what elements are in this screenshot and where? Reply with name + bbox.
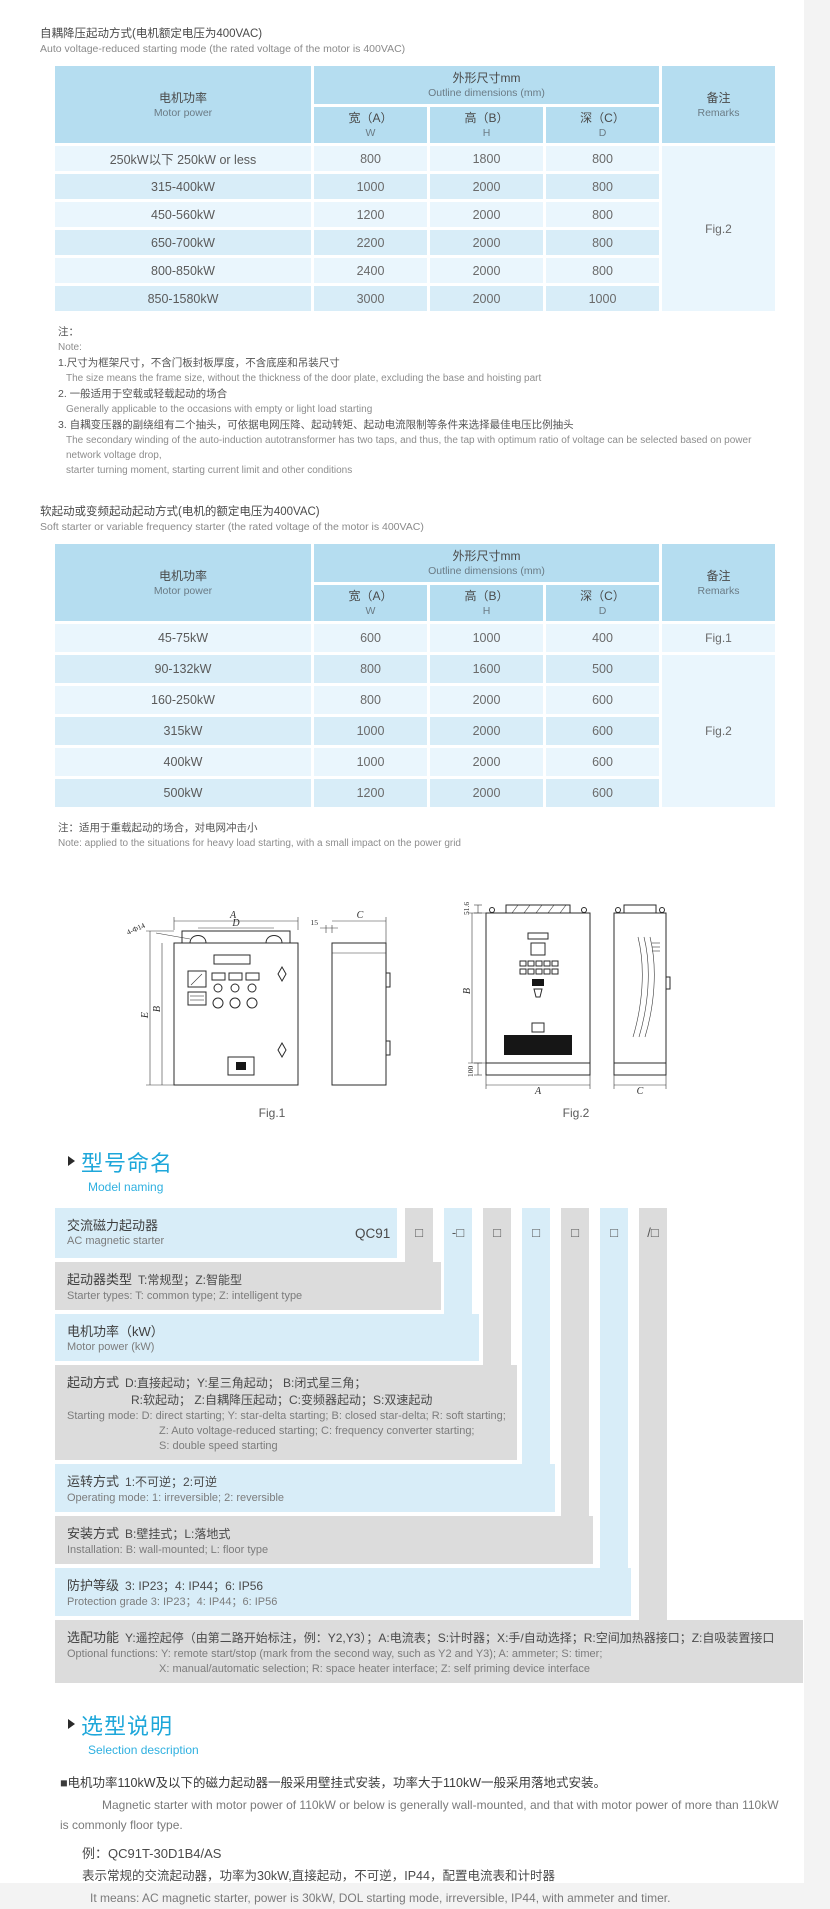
section1-notes: 注： Note: 1.尺寸为框架尺寸，不含门板封板厚度，不含底座和吊装尺寸 Th…	[58, 324, 790, 478]
catalog-page: 自耦降压起动方式(电机额定电压为400VAC) Auto voltage-red…	[0, 0, 830, 1909]
note-item: The secondary winding of the auto-induct…	[58, 433, 778, 463]
fig1-drawing: A D 4-Φ14 E	[122, 897, 422, 1097]
svg-text:B: B	[152, 1006, 163, 1012]
cell-remark-fig1: Fig.1	[662, 624, 775, 652]
header-outline-en: Outline dimensions (mm)	[314, 86, 659, 100]
header-outline-dimensions: 外形尺寸mm Outline dimensions (mm)	[314, 544, 659, 582]
fig1-caption: Fig.1	[122, 1106, 422, 1120]
svg-text:C: C	[357, 910, 364, 921]
naming-row-product: 交流磁力起动器 AC magnetic starter	[55, 1208, 397, 1258]
header-remarks: 备注 Remarks	[662, 66, 775, 143]
section2-title-en: Soft starter or variable frequency start…	[40, 520, 790, 535]
code-position-strip: □	[522, 1208, 550, 1466]
section2-title: 软起动或变频起动起动方式(电机的额定电压为400VAC) Soft starte…	[40, 504, 790, 535]
header-height: 高（B） H	[430, 107, 543, 143]
table-row: 45-75kW 600 1000 400 Fig.1	[55, 624, 775, 652]
header-remarks-cn: 备注	[662, 90, 775, 106]
code-position-strip: /□	[639, 1208, 667, 1622]
note-item: 1.尺寸为框架尺寸，不含门板封板厚度，不含底座和吊装尺寸	[58, 355, 790, 371]
code-position-strip: □	[600, 1208, 628, 1570]
code-position-strip: -□	[444, 1208, 472, 1316]
cell-h: 1800	[430, 146, 543, 171]
table-row: 250kW以下 250kW or less 800 1800 800 Fig.2	[55, 146, 775, 171]
header-motor-power-cn: 电机功率	[55, 90, 311, 106]
header-motor-power-en: Motor power	[55, 106, 311, 120]
naming-row-starter-type: 起动器类型T:常规型；Z:智能型 Starter types: T: commo…	[55, 1262, 441, 1310]
page-edge-right	[804, 0, 830, 1909]
code-position-strip: □	[561, 1208, 589, 1518]
header-outline-cn: 外形尺寸mm	[314, 70, 659, 86]
naming-row-operating-mode: 运转方式1:不可逆；2:可逆 Operating mode: 1: irreve…	[55, 1464, 555, 1512]
selection-heading-en: Selection description	[88, 1743, 790, 1757]
svg-text:B: B	[462, 988, 473, 994]
code-position-strip: □	[483, 1208, 511, 1367]
header-remarks-en: Remarks	[662, 106, 775, 120]
header-motor-power: 电机功率 Motor power	[55, 544, 311, 621]
svg-text:A: A	[534, 1086, 542, 1097]
section2-title-cn: 软起动或变频起动起动方式(电机的额定电压为400VAC)	[40, 504, 790, 520]
figure-1: A D 4-Φ14 E	[122, 897, 422, 1120]
note-item: Generally applicable to the occasions wi…	[58, 402, 778, 417]
naming-row-installation: 安装方式B:壁挂式；L:落地式 Installation: B: wall-mo…	[55, 1516, 593, 1564]
section-arrow-icon	[68, 1156, 75, 1166]
selection-example-model: 例：QC91T-30D1B4/AS	[60, 1843, 790, 1865]
section-arrow-icon	[68, 1719, 75, 1729]
naming-row-starting-mode: 起动方式D:直接起动；Y:星三角起动； B:闭式星三角； R:软起动； Z:自耦…	[55, 1365, 517, 1460]
svg-text:100: 100	[466, 1066, 475, 1078]
section2-note: 注：适用于重载起动的场合，对电网冲击小 Note: applied to the…	[58, 820, 790, 851]
cell-w: 800	[314, 146, 427, 171]
cell-d: 800	[546, 146, 659, 171]
fig2-caption: Fig.2	[456, 1106, 696, 1120]
model-naming-heading-cn: 型号命名	[81, 1146, 173, 1178]
outline-figures: A D 4-Φ14 E	[122, 885, 790, 1120]
svg-text:4-Φ14: 4-Φ14	[125, 921, 146, 937]
figure-2: 51.6 B	[456, 885, 696, 1120]
model-code-prefix: QC91	[355, 1208, 390, 1258]
header-remarks: 备注 Remarks	[662, 544, 775, 621]
table-row: 90-132kW 800 1600 500 Fig.2	[55, 655, 775, 683]
fig2-drawing: 51.6 B	[456, 885, 696, 1097]
selection-example-cn: 表示常规的交流起动器，功率为30kW,直接起动，不可逆，IP44，配置电流表和计…	[60, 1865, 790, 1887]
svg-text:15: 15	[311, 918, 319, 927]
naming-row-optional-functions: 选配功能Y:遥控起停（由第二路开始标注，例：Y2,Y3）；A:电流表；S:计时器…	[55, 1620, 803, 1683]
model-naming-diagram: 交流磁力起动器 AC magnetic starter 起动器类型T:常规型；Z…	[55, 1208, 803, 1683]
table-header-row: 电机功率 Motor power 外形尺寸mm Outline dimensio…	[55, 66, 775, 104]
note-label-en: Note:	[58, 340, 778, 355]
note-item: 3. 自耦变压器的副绕组有二个抽头，可依据电网压降、起动转矩、起动电流限制等条件…	[58, 417, 790, 433]
header-width: 宽（A） W	[314, 107, 427, 143]
selection-heading: 选型说明 Selection description	[68, 1709, 790, 1757]
note-label-cn: 注：	[58, 324, 790, 340]
header-depth: 深（C） D	[546, 585, 659, 621]
header-outline-dimensions: 外形尺寸mm Outline dimensions (mm)	[314, 66, 659, 104]
cell-power: 250kW以下 250kW or less	[55, 146, 311, 171]
auto-voltage-dimension-table: 电机功率 Motor power 外形尺寸mm Outline dimensio…	[52, 63, 778, 314]
selection-para-cn: ■电机功率110kW及以下的磁力起动器一般采用壁挂式安装，功率大于110kW一般…	[60, 1773, 790, 1793]
header-width: 宽（A） W	[314, 585, 427, 621]
table-header-row: 电机功率 Motor power 外形尺寸mm Outline dimensio…	[55, 544, 775, 582]
header-motor-power: 电机功率 Motor power	[55, 66, 311, 143]
svg-text:C: C	[637, 1086, 644, 1097]
naming-row-protection-grade: 防护等级3: IP23；4: IP44；6: IP56 Protection g…	[55, 1568, 631, 1616]
naming-row-motor-power: 电机功率（kW） Motor power (kW)	[55, 1314, 479, 1361]
model-naming-heading-en: Model naming	[88, 1180, 790, 1194]
section1-title-en: Auto voltage-reduced starting mode (the …	[40, 42, 790, 57]
selection-body: ■电机功率110kW及以下的磁力起动器一般采用壁挂式安装，功率大于110kW一般…	[60, 1773, 790, 1909]
model-naming-heading: 型号命名 Model naming	[68, 1146, 790, 1194]
cell-remark-merged: Fig.2	[662, 146, 775, 311]
code-position-strip: □	[405, 1208, 433, 1264]
section1-title-cn: 自耦降压起动方式(电机额定电压为400VAC)	[40, 26, 790, 42]
soft-starter-dimension-table: 电机功率 Motor power 外形尺寸mm Outline dimensio…	[52, 541, 778, 810]
header-height: 高（B） H	[430, 585, 543, 621]
cell-remark-merged: Fig.2	[662, 655, 775, 807]
svg-text:D: D	[231, 918, 240, 929]
selection-heading-cn: 选型说明	[81, 1709, 173, 1741]
note-item: The size means the frame size, without t…	[58, 371, 778, 386]
selection-para-en: Magnetic starter with motor power of 110…	[60, 1795, 790, 1835]
section1-title: 自耦降压起动方式(电机额定电压为400VAC) Auto voltage-red…	[40, 26, 790, 57]
note-item: 2. 一般适用于空载或轻载起动的场合	[58, 386, 790, 402]
note-item: starter turning moment, starting current…	[58, 463, 778, 478]
selection-example-en: It means: AC magnetic starter, power is …	[60, 1887, 790, 1909]
header-depth: 深（C） D	[546, 107, 659, 143]
svg-text:E: E	[140, 1012, 151, 1019]
